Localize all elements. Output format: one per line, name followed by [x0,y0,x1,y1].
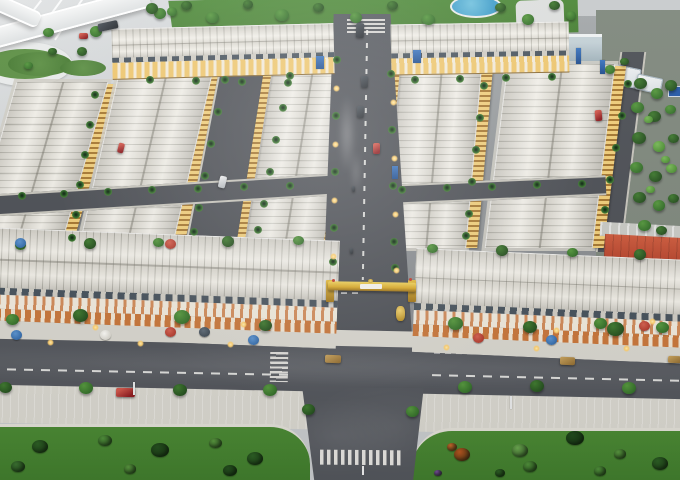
palm-tree [624,80,632,88]
tree [73,309,88,322]
tree [422,14,435,25]
palm-tree [76,181,84,189]
tree [530,380,544,392]
palm-tree [91,91,99,99]
street-lamp-glow [443,344,450,351]
palm-tree [476,114,484,122]
umbrella [100,330,111,340]
tree [146,3,158,14]
tree [594,318,607,329]
palm-tree [279,104,287,112]
street-lamp-glow [533,345,540,352]
palm-tree [456,75,464,83]
tree [350,12,362,23]
tree [666,164,677,174]
palm-tree [612,144,620,152]
palm-tree [192,77,200,85]
lamp-pole [510,396,512,409]
tree [634,78,647,89]
umbrella [199,327,210,337]
car [373,143,380,154]
tree [522,14,534,25]
street-lamp-glow [47,339,54,346]
palm-tree [284,79,292,87]
tree [77,47,87,56]
street-lamp-glow [390,99,397,106]
umbrella [165,327,176,337]
tree [293,236,304,246]
bush [454,448,470,461]
palm-tree [214,108,222,116]
tree [43,28,54,38]
tree [458,381,472,393]
palm-tree [468,178,476,186]
tree [84,238,96,249]
car [325,355,341,364]
tree [222,236,234,247]
bush [434,470,442,476]
tree [243,0,253,9]
tree [668,194,679,204]
palm-tree [18,192,26,200]
umbrella [546,335,557,345]
lamp-pole [133,382,135,395]
palm-tree [207,140,215,148]
bush [32,440,48,453]
bush [566,431,584,445]
tree [302,404,315,415]
palm-tree [548,73,556,81]
palm-tree [533,181,541,189]
tree [495,3,506,13]
palm-tree [398,186,406,194]
palm-tree [201,172,209,180]
car [218,175,228,188]
scale-model-photo [0,0,680,480]
palm-tree [488,183,496,191]
tree [630,162,643,173]
palm-tree [330,224,338,232]
tree [0,382,12,393]
palm-tree [332,112,340,120]
tree [633,192,646,203]
scatter-objects-layer [0,0,680,480]
palm-tree [104,188,112,196]
bush [124,464,136,474]
tree [638,220,651,231]
tree [206,12,219,23]
tree [174,310,190,324]
car [97,20,118,32]
tree [646,186,655,194]
umbrella [248,335,259,345]
tree [448,317,463,330]
tree [406,406,419,417]
tree [6,314,19,325]
tree [605,65,615,74]
tree [607,322,624,337]
umbrella [473,333,484,343]
tree [181,1,192,11]
palm-tree [190,228,198,236]
bush [11,461,25,472]
street-lamp-glow [240,321,247,328]
bush [247,452,263,465]
bush [523,461,537,472]
tree [665,80,677,91]
project-banner [392,166,398,179]
tree [653,200,665,211]
palm-tree [480,82,488,90]
tree [631,102,644,113]
street-lamp-glow [92,324,99,331]
bush [151,443,169,457]
street-lamp-glow [553,327,560,334]
palm-tree [72,211,80,219]
tree [656,322,669,333]
street-lamp-glow [331,197,338,204]
palm-tree [146,76,154,84]
tree [387,1,398,11]
palm-tree [601,206,609,214]
tree [653,141,665,152]
palm-tree [68,234,76,242]
street-lamp-glow [391,155,398,162]
tree [566,11,576,20]
project-banner [316,56,324,69]
palm-tree [254,226,262,234]
palm-tree [411,76,419,84]
palm-tree [240,183,248,191]
street-lamp-glow [393,267,400,274]
tree [153,238,164,248]
tree [549,1,560,11]
street-lamp-glow [332,141,339,148]
car [560,357,575,366]
tree [665,105,676,115]
tree [668,134,679,144]
tree [173,384,187,396]
palm-tree [81,151,89,159]
tree [48,48,57,56]
palm-tree [462,232,470,240]
palm-tree [465,210,473,218]
palm-tree [331,168,339,176]
palm-tree [388,126,396,134]
project-banner [413,50,421,63]
palm-tree [86,121,94,129]
palm-tree [390,238,398,246]
bush [447,443,457,451]
street-lamp-glow [330,253,337,260]
tree [567,248,578,258]
tree [167,7,177,16]
car [350,248,353,254]
tree [644,116,653,124]
street-lamp-glow [137,340,144,347]
tree [656,226,667,236]
tree [79,382,93,394]
car [117,142,125,153]
tree [632,132,646,144]
tree [523,321,537,333]
palm-tree [387,70,395,78]
car [79,33,88,39]
tree [634,249,646,260]
umbrella [15,238,26,248]
car [595,110,603,122]
tree [651,88,663,99]
street-lamp-glow [333,85,340,92]
car [361,76,368,88]
tree [427,244,438,254]
bush [512,444,528,457]
street-lamp-glow [392,211,399,218]
palm-tree [60,190,68,198]
car [668,356,680,363]
bush [594,466,606,476]
bush [614,449,626,459]
bush [98,435,112,446]
tree [313,3,324,13]
umbrella [11,330,22,340]
palm-tree [502,74,510,82]
car [352,186,355,192]
palm-tree [195,204,203,212]
car [356,23,365,38]
palm-tree [221,76,229,84]
palm-tree [443,184,451,192]
bush [652,457,668,470]
project-banner [600,60,605,74]
bush [495,469,505,477]
street-lamp-glow [649,318,656,325]
tree [622,382,636,394]
tree [661,156,670,164]
palm-tree [260,200,268,208]
project-banner [576,48,581,64]
street-lamp-glow [623,345,630,352]
palm-tree [333,56,341,64]
street-lamp-glow [227,341,234,348]
tree [275,9,289,21]
bush [209,438,222,448]
bush [223,465,237,476]
palm-tree [238,78,246,86]
tree [24,62,33,70]
palm-tree [618,112,626,120]
palm-tree [272,136,280,144]
palm-tree [286,182,294,190]
palm-tree [194,185,202,193]
car [357,106,365,118]
palm-tree [606,176,614,184]
palm-tree [472,146,480,154]
tree [620,58,629,66]
tree [259,320,272,331]
tree [649,171,662,182]
palm-tree [578,180,586,188]
palm-tree [389,182,397,190]
palm-tree [266,168,274,176]
umbrella [165,239,176,249]
tree [263,384,277,396]
palm-tree [148,186,156,194]
tree [496,245,508,256]
